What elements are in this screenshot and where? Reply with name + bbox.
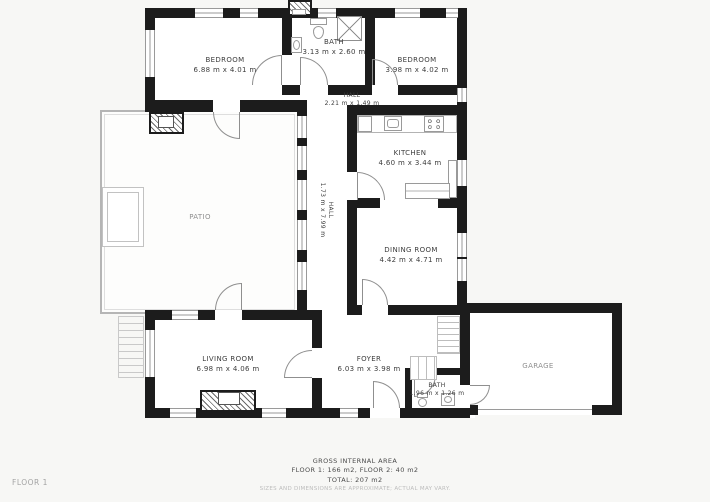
wall: [347, 115, 357, 305]
toilet-bowl: [418, 398, 427, 407]
window: [240, 8, 258, 18]
gross-area-floors: FLOOR 1: 166 m2, FLOOR 2: 40 m2: [0, 466, 710, 475]
garage-door: [478, 405, 592, 415]
window: [318, 8, 336, 18]
room-label-bedroom-2: BEDROOM 3.98 m x 4.02 m: [385, 55, 448, 75]
window: [457, 88, 467, 102]
wall: [460, 303, 622, 313]
door-opening: [213, 100, 240, 112]
window: [297, 116, 307, 138]
room-dims: 6.88 m x 4.01 m: [193, 65, 256, 75]
interior-stairs: [437, 316, 460, 354]
door-opening: [282, 55, 292, 85]
window: [457, 259, 467, 281]
window: [145, 30, 155, 77]
floor-label: FLOOR 1: [12, 478, 48, 487]
window: [457, 233, 467, 257]
stair-railing: [410, 356, 437, 380]
room-label-foyer: FOYER 6.03 m x 3.98 m: [337, 354, 400, 374]
door-opening: [370, 408, 400, 418]
room-label-bath-2: BATH 1.96 m x 1.26 m: [410, 382, 465, 398]
toilet-tank: [310, 18, 327, 25]
window: [145, 330, 155, 377]
room-dims: 2.21 m x 1.49 m: [325, 100, 380, 108]
room-label-bath-1: BATH 3.13 m x 2.60 m: [302, 37, 365, 57]
room-name: GARAGE: [522, 361, 553, 371]
gross-area-summary: GROSS INTERNAL AREA FLOOR 1: 166 m2, FLO…: [0, 457, 710, 492]
wall: [438, 198, 467, 208]
room-label-hall-top: HALL 2.21 m x 1.49 m: [325, 92, 380, 108]
room-label-dining: DINING ROOM 4.42 m x 4.71 m: [379, 245, 442, 265]
room-label-garage: GARAGE: [522, 361, 553, 371]
room-name: DINING ROOM: [379, 245, 442, 255]
window: [297, 146, 307, 170]
room-label-patio: PATIO: [189, 212, 211, 222]
door-opening: [312, 348, 322, 378]
room-name: BATH: [302, 37, 365, 47]
planter-inner: [107, 192, 139, 242]
floor-plan: BEDROOM 6.88 m x 4.01 m BATH 3.13 m x 2.…: [0, 0, 710, 502]
room-dims: 3.13 m x 2.60 m: [302, 47, 365, 57]
window: [340, 408, 358, 418]
room-dims: 1.96 m x 1.26 m: [410, 390, 465, 398]
room-name: PATIO: [189, 212, 211, 222]
room-dims: 4.42 m x 4.71 m: [379, 255, 442, 265]
door-opening: [215, 310, 242, 320]
room-name: HALL: [325, 92, 380, 100]
window: [172, 310, 198, 320]
window: [195, 8, 223, 18]
room-label-living: LIVING ROOM 6.98 m x 4.06 m: [196, 354, 259, 374]
door-opening: [362, 305, 388, 315]
stove: [424, 116, 444, 132]
wall: [612, 303, 622, 415]
room-name: BATH: [410, 382, 465, 390]
patio-fireplace-box: [158, 116, 174, 128]
window: [446, 8, 458, 18]
kitchen-sink-basin: [387, 119, 399, 128]
room-label-kitchen: KITCHEN 4.60 m x 3.44 m: [378, 148, 441, 168]
room-dims: 6.03 m x 3.98 m: [337, 364, 400, 374]
door-opening: [347, 172, 357, 200]
disclaimer-text: SIZES AND DIMENSIONS ARE APPROXIMATE; AC…: [0, 486, 710, 492]
window: [262, 408, 286, 418]
gross-area-total: TOTAL: 207 m2: [0, 476, 710, 485]
window: [297, 262, 307, 290]
room-dims: 3.98 m x 4.02 m: [385, 65, 448, 75]
room-dims: 4.60 m x 3.44 m: [378, 158, 441, 168]
living-fireplace-box: [218, 392, 240, 405]
room-label-hall-corridor: HALL 1.73 m x 7.99 m: [318, 183, 334, 238]
room-name: KITCHEN: [378, 148, 441, 158]
room-name: LIVING ROOM: [196, 354, 259, 364]
room-dims: 6.98 m x 4.06 m: [196, 364, 259, 374]
room-dims: 1.73 m x 7.99 m: [318, 183, 326, 238]
room-label-bedroom-1: BEDROOM 6.88 m x 4.01 m: [193, 55, 256, 75]
window: [297, 180, 307, 210]
fridge: [358, 116, 372, 132]
window: [457, 160, 467, 186]
exterior-stairs: [118, 316, 144, 378]
wall: [457, 112, 467, 315]
window: [170, 408, 196, 418]
sink-basin: [293, 40, 300, 50]
window: [297, 220, 307, 250]
chimney-vent: [292, 9, 306, 15]
window: [395, 8, 420, 18]
gross-area-title: GROSS INTERNAL AREA: [0, 457, 710, 466]
room-name: BEDROOM: [385, 55, 448, 65]
room-name: HALL: [326, 183, 334, 238]
room-name: FOYER: [337, 354, 400, 364]
room-name: BEDROOM: [193, 55, 256, 65]
kitchen-island: [405, 183, 450, 199]
